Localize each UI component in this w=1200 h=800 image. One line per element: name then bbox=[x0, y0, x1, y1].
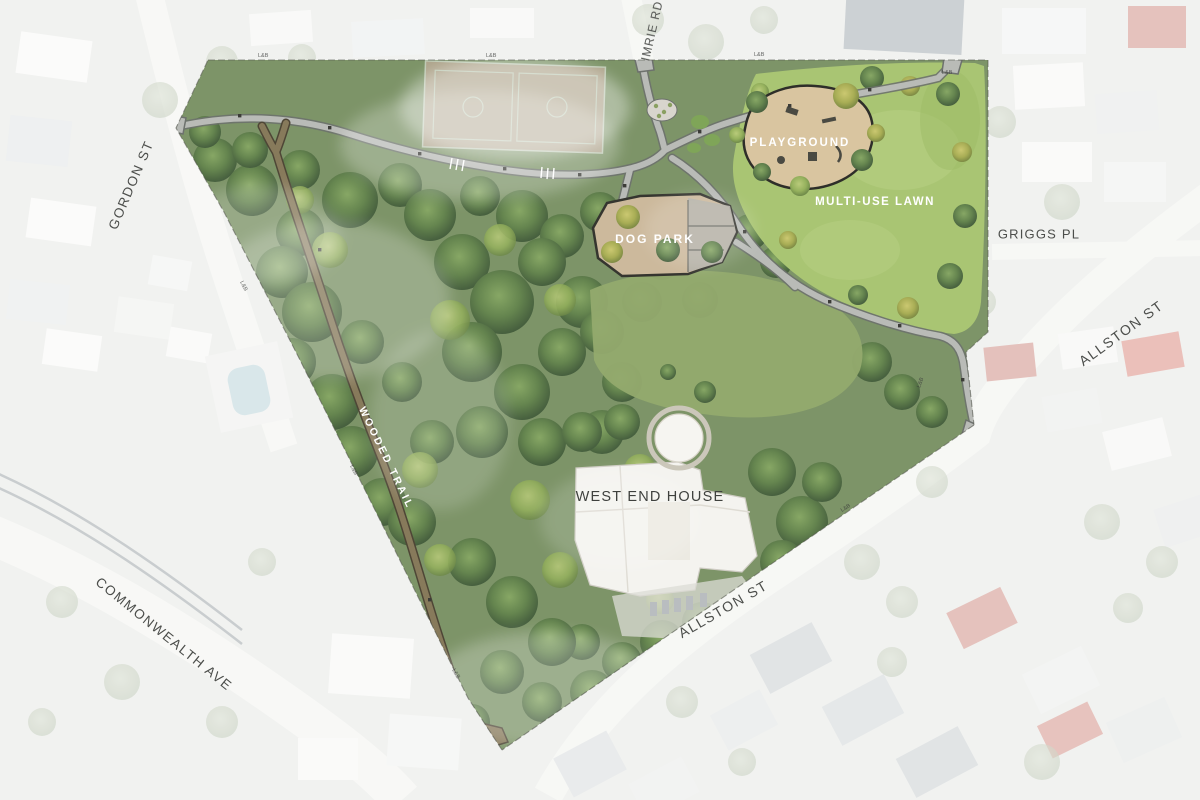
boundary-marker: L&B bbox=[486, 53, 497, 59]
boundary-marker: L&B bbox=[754, 52, 765, 58]
site-plan: L&B L&B L&B L&B L&B L&B L&B L&B L&B PLAY… bbox=[0, 0, 1200, 800]
boundary-marker: L&B bbox=[258, 53, 269, 59]
boundary-marker: L&B bbox=[942, 70, 953, 76]
site-plan-drawing: L&B L&B L&B L&B L&B L&B L&B L&B L&B bbox=[0, 0, 1200, 800]
building-dome bbox=[655, 414, 703, 462]
